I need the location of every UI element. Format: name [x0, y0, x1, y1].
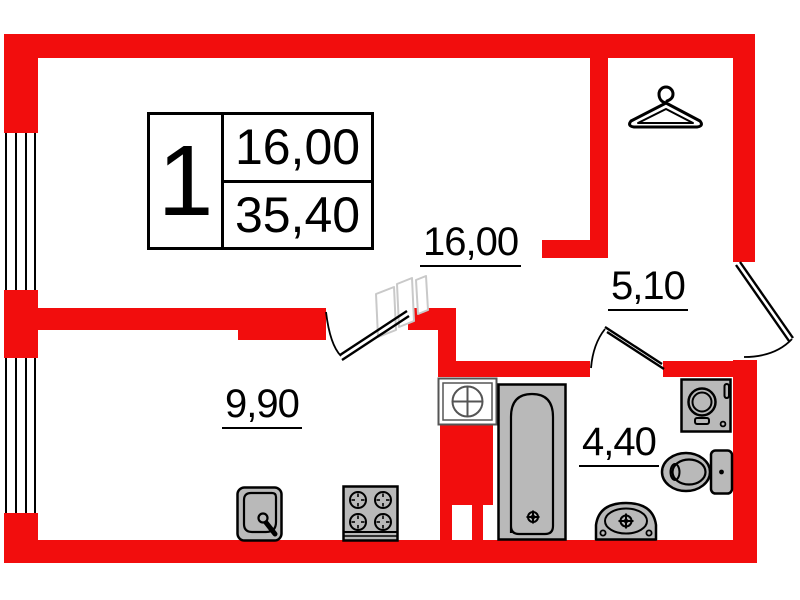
living-room-area-label: 16,00 [420, 222, 521, 267]
pedestal-sink-icon [594, 498, 658, 541]
bathroom-door [591, 327, 664, 369]
living-area-value: 16,00 [224, 115, 371, 183]
washing-machine-icon [680, 378, 732, 433]
room-count: 1 [150, 115, 224, 247]
hallway-area-label: 5,10 [608, 266, 688, 311]
stove-4-burner-icon [342, 485, 399, 542]
title-block: 1 16,00 35,40 [147, 112, 374, 250]
kitchen-door [326, 311, 409, 360]
window-lower [6, 358, 35, 513]
entrance-door [736, 262, 793, 357]
toilet-icon [660, 448, 734, 496]
bathtub-icon [497, 383, 567, 541]
clothes-hanger-icon [625, 84, 705, 136]
kitchen-area-label: 9,90 [222, 384, 302, 429]
kitchen-sink-icon [236, 486, 283, 542]
total-area-value: 35,40 [224, 183, 371, 248]
floor-plan: 1 16,00 35,40 16,00 5,10 9,90 4,40 [0, 0, 800, 600]
bathroom-area-label: 4,40 [579, 422, 659, 467]
ventilation-shaft-icon [437, 377, 498, 426]
door-ghost-panels [376, 276, 428, 337]
window-upper [6, 133, 35, 290]
